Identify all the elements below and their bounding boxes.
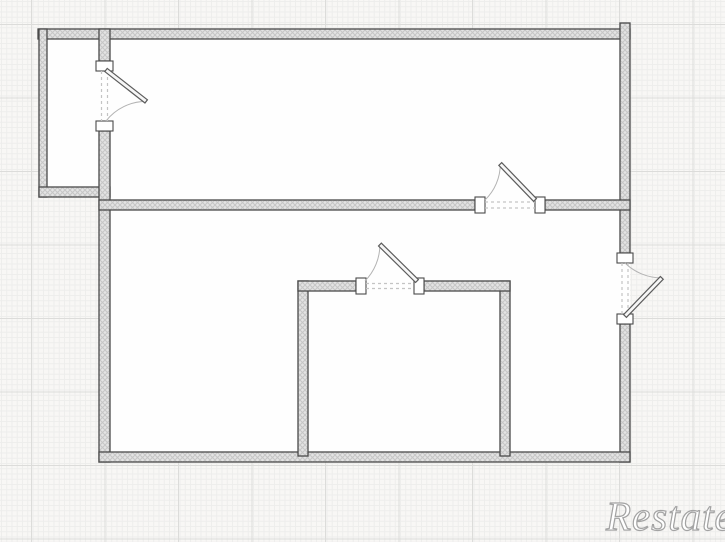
door-middle-jamb-right [535, 197, 545, 213]
wall-middle-left-segment [99, 200, 475, 210]
floor-plan-page: Restate [0, 0, 725, 542]
wall-inner-top-right-segment [424, 281, 510, 291]
floor-plan-drawing [0, 0, 725, 542]
room-closet-interior [47, 39, 99, 187]
door-right-swing-arc [625, 263, 662, 278]
door-right-jamb-top [617, 253, 633, 263]
room-upper-interior [110, 39, 620, 200]
wall-closet-left [39, 29, 47, 197]
door-middle-jamb-left [475, 197, 485, 213]
wall-left-lower-segment [99, 131, 110, 462]
wall-right-upper-segment [620, 23, 630, 253]
door-closet-jamb-bottom [96, 121, 113, 131]
door-inner-jamb-left [356, 278, 366, 294]
wall-bottom [99, 452, 630, 462]
wall-inner-right [500, 281, 510, 456]
door-closet-jamb-top [96, 61, 113, 71]
watermark: Restate [606, 496, 725, 537]
room-interiors [47, 39, 630, 452]
wall-right-lower-segment [620, 324, 630, 462]
room-lower-interior [110, 210, 620, 452]
wall-left-upper-segment [99, 29, 110, 61]
wall-top [38, 29, 630, 39]
wall-middle-right-segment [545, 200, 630, 210]
wall-inner-left [298, 281, 308, 456]
wall-inner-top-left-segment [298, 281, 356, 291]
